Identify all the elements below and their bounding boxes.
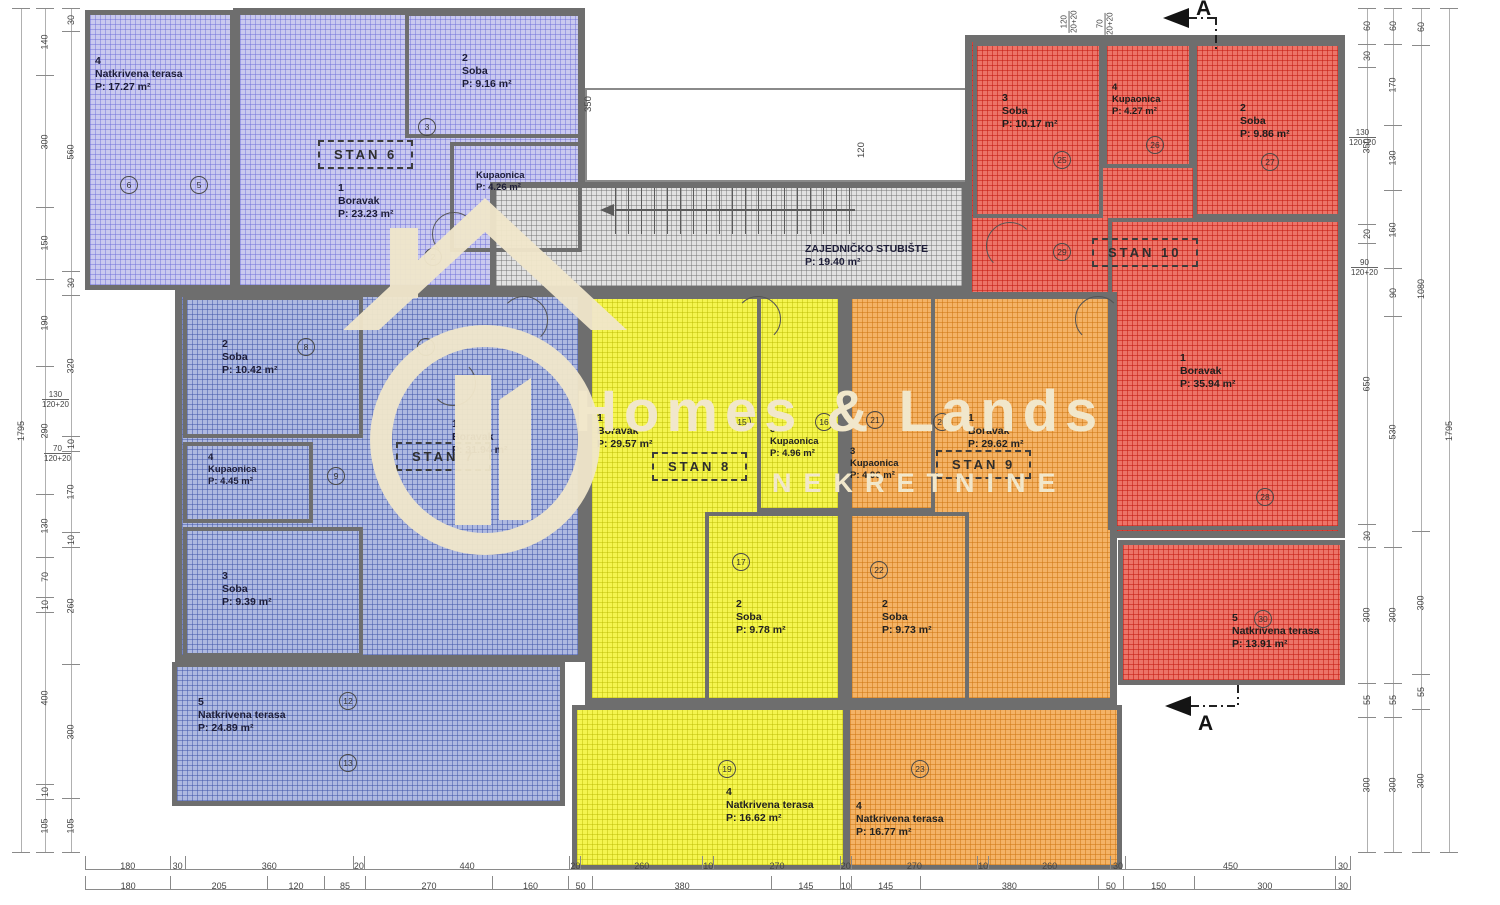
stair-rail: [615, 209, 855, 211]
dimension-segment: 300: [36, 75, 54, 207]
dimension-value: 170: [66, 485, 76, 500]
dimension-value: 90: [1388, 287, 1398, 297]
dimension-segment: 10: [36, 597, 54, 612]
dimension-segment: 300: [1358, 547, 1376, 683]
window-width-value: 70: [1096, 12, 1106, 34]
dimension-value: 60: [1416, 22, 1426, 32]
dimension-segment: 300: [1412, 531, 1430, 674]
dimension-value: 10: [841, 881, 851, 891]
room-label-stan8-kupaonica: 3 Kupaonica P: 4.96 m²: [770, 424, 819, 460]
dimension-value: 530: [1388, 425, 1398, 440]
dimension-segment: 380: [921, 876, 1100, 889]
dimension-segment: 120: [268, 876, 325, 889]
room-label-stan7-soba2: 2 Soba P: 10.42 m²: [222, 338, 277, 377]
room-area: P: 4.96 m²: [770, 448, 819, 460]
dimension-segment: 450: [1126, 856, 1336, 869]
dimension-value: 140: [40, 35, 50, 50]
interior-dimension-label: 350: [583, 96, 594, 112]
dimension-value: 50: [576, 881, 586, 891]
window-dimension-label: 70120+20: [44, 444, 71, 463]
dimension-segment: 400: [36, 612, 54, 784]
room-name: Soba: [222, 351, 277, 364]
dimension-col-left-mid: 140300150190290130701040010105: [36, 8, 54, 853]
room-index-badge: 13: [339, 754, 357, 772]
dimension-value: 440: [460, 861, 475, 871]
dimension-value: 10: [66, 535, 76, 545]
dimension-value: 60: [1388, 21, 1398, 31]
dimension-value: 55: [1388, 695, 1398, 705]
room-label-stan10-boravak: 1 Boravak P: 35.94 m²: [1180, 352, 1235, 391]
room-index-badge: 16: [815, 413, 833, 431]
window-height-value: 120+20: [1349, 138, 1376, 147]
section-label: A: [1198, 712, 1213, 736]
room-label-stan9-boravak: 1 Boravak P: 29.62 m²: [968, 412, 1023, 451]
room-label-stan6-terasa: 4 Natkrivena terasa P: 17.27 m²: [95, 55, 183, 94]
dimension-value: 1795: [16, 420, 26, 440]
staircase-area: P: 19.40 m²: [805, 256, 928, 269]
dimension-segment: 105: [62, 798, 80, 852]
dimension-value: 300: [1388, 777, 1398, 792]
room-label-stan9-soba: 2 Soba P: 9.73 m²: [882, 598, 932, 637]
window-width-value: 130: [42, 390, 69, 400]
dimension-value: 30: [1338, 861, 1348, 871]
dimension-segment: 300: [62, 664, 80, 798]
room-index-badge: 22: [870, 561, 888, 579]
dimension-value: 145: [798, 881, 813, 891]
room-area: P: 13.91 m²: [1232, 638, 1320, 651]
dimension-segment: 20: [1358, 224, 1376, 243]
room-area: P: 23.23 m²: [338, 208, 393, 221]
room-area: P: 4.27 m²: [1112, 106, 1161, 118]
dimension-segment: 300: [1358, 717, 1376, 853]
window-width-value: 120: [1060, 10, 1070, 32]
window-dimension-label: 12020+20: [1060, 10, 1079, 32]
dimension-value: 320: [66, 358, 76, 373]
room-number: 2: [736, 598, 786, 611]
dimension-value: 10: [40, 787, 50, 797]
room-name: Natkrivena terasa: [95, 68, 183, 81]
dimension-segment: 260: [989, 856, 1111, 869]
room-index-badge: 23: [911, 760, 929, 778]
room-area: P: 4.96 m²: [850, 470, 899, 482]
dimension-segment: 530: [1384, 316, 1402, 547]
dimension-segment: 105: [36, 799, 54, 852]
dimension-value: 20: [1362, 229, 1372, 239]
dimension-segment: 300: [1384, 717, 1402, 853]
dimension-value: 60: [1362, 21, 1372, 31]
room-index-badge: 7: [417, 338, 435, 356]
room-number: 2: [462, 52, 512, 65]
dimension-segment: 560: [62, 31, 80, 271]
room-label-stan7-kupaonica: 4 Kupaonica P: 4.45 m²: [208, 452, 257, 488]
room-area: P: 9.39 m²: [222, 596, 272, 609]
dimension-value: 400: [40, 691, 50, 706]
dimension-value: 300: [40, 134, 50, 149]
dimension-segment: 30: [1358, 524, 1376, 547]
room-label-stan10-terasa: 5 Natkrivena terasa P: 13.91 m²: [1232, 612, 1320, 651]
dimension-segment: 60: [1384, 8, 1402, 44]
section-cut-line: [1215, 17, 1217, 49]
dimension-value: 270: [769, 861, 784, 871]
window-width-value: 90: [1351, 258, 1378, 268]
section-arrow-icon: [1165, 696, 1191, 716]
room-name: Kupaonica: [208, 464, 257, 476]
dimension-value: 380: [1002, 881, 1017, 891]
room-name: Soba: [736, 611, 786, 624]
dimension-value: 30: [1338, 881, 1348, 891]
room-name: Boravak: [338, 195, 393, 208]
room-label-stan7-soba3: 3 Soba P: 9.39 m²: [222, 570, 272, 609]
dimension-value: 190: [40, 315, 50, 330]
room-index-badge: 27: [1261, 153, 1279, 171]
dimension-segment: 150: [1124, 876, 1195, 889]
room-name: Natkrivena terasa: [856, 813, 944, 826]
room-index-badge: 21: [866, 411, 884, 429]
room-label-stan8-terasa: 4 Natkrivena terasa P: 16.62 m²: [726, 786, 814, 825]
room-number: 3: [770, 424, 819, 436]
room-label-stan6-soba: 2 Soba P: 9.16 m²: [462, 52, 512, 91]
dimension-value: 380: [675, 881, 690, 891]
dimension-col-right-total: 1795: [1440, 8, 1458, 853]
room-name: Soba: [1002, 105, 1057, 118]
room-area: P: 4.45 m²: [208, 476, 257, 488]
dimension-value: 270: [907, 861, 922, 871]
dimension-segment: 160: [1384, 190, 1402, 267]
dimension-col-right-mid: 601701301609053030055300: [1384, 8, 1402, 853]
room-name: Boravak: [597, 425, 652, 438]
room-area: P: 10.17 m²: [1002, 118, 1057, 131]
window-dimension-label: 130120+20: [42, 390, 69, 409]
staircase-name: ZAJEDNIČKO STUBIŠTE: [805, 243, 928, 256]
dimension-segment: 30: [62, 271, 80, 294]
dimension-segment: 270: [852, 856, 978, 869]
dimension-segment: 150: [36, 207, 54, 278]
window-width-value: 70: [44, 444, 71, 454]
dimension-value: 450: [1223, 861, 1238, 871]
dimension-value: 300: [1416, 596, 1426, 611]
dimension-segment: 180: [86, 876, 171, 889]
dimension-value: 85: [340, 881, 350, 891]
dimension-row-bottom-inner: 1802051208527016050380145101453805015030…: [85, 876, 1351, 890]
room-area: P: 9.78 m²: [736, 624, 786, 637]
room-label-stan10-soba2: 2 Soba P: 9.86 m²: [1240, 102, 1290, 141]
dimension-value: 170: [1388, 78, 1398, 93]
dimension-segment: 260: [62, 547, 80, 664]
room-area: P: 35.94 m²: [1180, 378, 1235, 391]
room-area: P: 24.89 m²: [198, 722, 286, 735]
room-index-badge: 9: [327, 467, 345, 485]
dimension-segment: 170: [1384, 44, 1402, 126]
dimension-segment: 650: [1358, 243, 1376, 524]
dimension-value: 300: [66, 724, 76, 739]
room-area: P: 16.62 m²: [726, 812, 814, 825]
unit-title-stan10: STAN 10: [1092, 238, 1198, 267]
room-number: 3: [1002, 92, 1057, 105]
dimension-segment: 30: [171, 856, 186, 869]
section-label: A: [1196, 0, 1211, 21]
dimension-col-left-outer: 1795: [12, 8, 30, 853]
room-label-stan10-soba3: 3 Soba P: 10.17 m²: [1002, 92, 1057, 131]
dimension-segment: 60: [1358, 8, 1376, 44]
staircase-label: ZAJEDNIČKO STUBIŠTE P: 19.40 m²: [805, 243, 928, 269]
room-name: Soba: [222, 583, 272, 596]
room-name: Kupaonica: [476, 170, 525, 182]
room-area: P: 10.42 m²: [222, 364, 277, 377]
dimension-value: 300: [1362, 777, 1372, 792]
dimension-value: 300: [1362, 608, 1372, 623]
dimension-value: 20: [570, 861, 580, 871]
dimension-segment: 50: [569, 876, 593, 889]
dimension-value: 20: [841, 861, 851, 871]
dimension-segment: 320: [62, 295, 80, 437]
dimension-value: 260: [66, 599, 76, 614]
room-index-badge: 28: [1256, 488, 1274, 506]
dimension-segment: 10: [62, 532, 80, 547]
section-arrow-icon: [1163, 8, 1189, 28]
room-index-badge: 29: [1053, 243, 1071, 261]
dimension-segment: 140: [36, 8, 54, 75]
room-number: 4: [95, 55, 183, 68]
stan9-terrace-zone: [845, 705, 1122, 870]
room-number: 4: [1112, 82, 1161, 94]
room-index-badge: 15: [733, 413, 751, 431]
dimension-value: 150: [40, 236, 50, 251]
dimension-value: 260: [634, 861, 649, 871]
dimension-row-bottom-outer: 1803036020440202601027020270102603045030: [85, 856, 1351, 870]
dimension-value: 180: [121, 881, 136, 891]
dimension-segment: 55: [1384, 683, 1402, 717]
dimension-segment: 30: [62, 8, 80, 31]
dimension-segment: 300: [1195, 876, 1336, 889]
room-number: 2: [222, 338, 277, 351]
unit-title-stan7: STAN 7: [396, 442, 491, 471]
stair-treads: [615, 188, 855, 234]
dimension-segment: 85: [325, 876, 366, 889]
room-label-stan10-kupaonica: 4 Kupaonica P: 4.27 m²: [1112, 82, 1161, 118]
dimension-segment: 20: [354, 856, 365, 869]
dimension-segment: 270: [366, 876, 493, 889]
dimension-segment: 30: [1358, 44, 1376, 67]
dimension-value: 150: [1151, 881, 1166, 891]
room-number: 5: [1232, 612, 1320, 625]
room-label-stan8-soba: 2 Soba P: 9.78 m²: [736, 598, 786, 637]
dimension-value: 105: [66, 818, 76, 833]
dimension-segment: 20: [570, 856, 581, 869]
dimension-value: 1080: [1416, 279, 1426, 299]
dimension-value: 180: [120, 861, 135, 871]
dimension-value: 360: [262, 861, 277, 871]
section-cut-line: [1191, 705, 1239, 707]
room-area: P: 17.27 m²: [95, 81, 183, 94]
room-number: 5: [198, 696, 286, 709]
dimension-segment: 10: [703, 856, 714, 869]
dimension-segment: 30: [1111, 856, 1126, 869]
dimension-segment: 180: [86, 856, 171, 869]
room-index-badge: 8: [297, 338, 315, 356]
room-index-badge: 20: [933, 413, 951, 431]
dimension-value: 300: [1257, 881, 1272, 891]
room-number: 4: [856, 800, 944, 813]
dimension-value: 205: [212, 881, 227, 891]
room-name: Kupaonica: [850, 458, 899, 470]
dimension-value: 105: [40, 818, 50, 833]
dimension-segment: 145: [852, 876, 921, 889]
stan7-soba3-room: [183, 527, 363, 657]
room-area: P: 16.77 m²: [856, 826, 944, 839]
dimension-value: 560: [66, 144, 76, 159]
room-area: P: 9.16 m²: [462, 78, 512, 91]
window-width-value: 130: [1349, 128, 1376, 138]
dimension-segment: 1795: [12, 8, 30, 852]
window-height-value: 120+20: [42, 400, 69, 409]
dimension-segment: 30: [1336, 856, 1351, 869]
stan6-terrace-zone: [85, 10, 235, 290]
room-area: P: 4.26 m²: [476, 182, 525, 194]
dimension-value: 300: [1388, 608, 1398, 623]
room-index-badge: 26: [1146, 136, 1164, 154]
room-name: Soba: [1240, 115, 1290, 128]
dimension-segment: 205: [171, 876, 268, 889]
dimension-segment: 130: [36, 494, 54, 557]
window-height-value: 20+20: [1106, 12, 1115, 34]
room-name: Natkrivena terasa: [198, 709, 286, 722]
room-index-badge: 30: [1254, 610, 1272, 628]
interior-dimension-label: 120: [856, 142, 867, 158]
room-index-badge: 19: [718, 760, 736, 778]
room-name: Natkrivena terasa: [726, 799, 814, 812]
room-name: Kupaonica: [770, 436, 819, 448]
room-label-stan8-boravak: 1 Boravak P: 29.57 m²: [597, 412, 652, 451]
dimension-segment: 55: [1358, 683, 1376, 717]
room-area: P: 29.57 m²: [597, 438, 652, 451]
room-number: 1: [338, 182, 393, 195]
room-number: 1: [597, 412, 652, 425]
room-name: Natkrivena terasa: [1232, 625, 1320, 638]
dimension-value: 1795: [1444, 420, 1454, 440]
room-index-badge: 17: [732, 553, 750, 571]
dimension-value: 10: [703, 861, 713, 871]
stan6-kupaonica-room: [450, 142, 582, 252]
dimension-segment: 60: [1412, 8, 1430, 45]
dimension-col-left-inner: 30560303201017010260300105: [62, 8, 80, 853]
dimension-value: 30: [173, 861, 183, 871]
dimension-value: 300: [1416, 774, 1426, 789]
dimension-value: 270: [421, 881, 436, 891]
room-label-stan6-boravak: 1 Boravak P: 23.23 m²: [338, 182, 393, 221]
dimension-segment: 10: [978, 856, 989, 869]
dimension-segment: 160: [493, 876, 569, 889]
window-height-value: 120+20: [44, 454, 71, 463]
room-number: 3: [850, 446, 899, 458]
unit-title-stan6: STAN 6: [318, 140, 413, 169]
dimension-segment: 10: [841, 876, 852, 889]
dimension-value: 70: [40, 572, 50, 582]
room-number: 1: [452, 418, 507, 431]
dimension-segment: 260: [581, 856, 703, 869]
room-index-badge: 12: [339, 692, 357, 710]
dimension-segment: 20: [841, 856, 852, 869]
room-number: 3: [222, 570, 272, 583]
room-name: Kupaonica: [1112, 94, 1161, 106]
dimension-value: 50: [1106, 881, 1116, 891]
dimension-value: 30: [66, 15, 76, 25]
section-cut-line: [1237, 685, 1239, 705]
dimension-value: 10: [978, 861, 988, 871]
room-number: 4: [726, 786, 814, 799]
dimension-segment: 270: [714, 856, 840, 869]
dimension-value: 30: [1113, 861, 1123, 871]
room-number: 1: [968, 412, 1023, 425]
dimension-segment: 190: [36, 279, 54, 367]
dimension-value: 10: [40, 600, 50, 610]
room-index-badge: 25: [1053, 151, 1071, 169]
room-name: Boravak: [968, 425, 1023, 438]
room-name: Soba: [882, 611, 932, 624]
room-area: P: 9.86 m²: [1240, 128, 1290, 141]
dimension-segment: 170: [62, 451, 80, 532]
dimension-segment: 30: [1336, 876, 1351, 889]
dimension-value: 290: [40, 423, 50, 438]
dimension-segment: 290: [36, 366, 54, 494]
dimension-value: 30: [1362, 51, 1372, 61]
window-height-value: 120+20: [1351, 268, 1378, 277]
dimension-segment: 50: [1099, 876, 1123, 889]
dimension-col-right-outer: 60108030055300: [1412, 8, 1430, 853]
dimension-value: 55: [1416, 687, 1426, 697]
stair-direction-arrow-icon: [600, 204, 614, 216]
window-dimension-label: 130120+20: [1349, 128, 1376, 147]
unit-title-stan8: STAN 8: [652, 452, 747, 481]
dimension-value: 120: [289, 881, 304, 891]
dimension-value: 30: [66, 278, 76, 288]
dimension-value: 160: [1388, 222, 1398, 237]
room-area: P: 9.73 m²: [882, 624, 932, 637]
unit-title-stan9: STAN 9: [936, 450, 1031, 479]
dimension-value: 130: [1388, 151, 1398, 166]
room-number: 2: [1240, 102, 1290, 115]
dimension-segment: 440: [365, 856, 570, 869]
room-number: 2: [882, 598, 932, 611]
room-index-badge: 3: [418, 118, 436, 136]
window-height-value: 20+20: [1070, 10, 1079, 32]
dimension-segment: 90: [1384, 268, 1402, 316]
room-index-badge: 5: [190, 176, 208, 194]
room-label-stan6-kupaonica: Kupaonica P: 4.26 m²: [476, 170, 525, 194]
window-dimension-label: 90120+20: [1351, 258, 1378, 277]
room-number: 4: [208, 452, 257, 464]
dimension-segment: 70: [36, 557, 54, 596]
dimension-segment: 360: [186, 856, 354, 869]
dimension-value: 20: [354, 861, 364, 871]
room-number: 1: [1180, 352, 1235, 365]
void-above-staircase: [585, 88, 968, 182]
room-name: Boravak: [1180, 365, 1235, 378]
room-index-badge: 6: [120, 176, 138, 194]
floor-plan-canvas: 4 Natkrivena terasa P: 17.27 m² 2 Soba P…: [0, 0, 1500, 905]
dimension-value: 55: [1362, 695, 1372, 705]
dimension-value: 145: [878, 881, 893, 891]
dimension-value: 30: [1362, 531, 1372, 541]
dimension-value: 160: [523, 881, 538, 891]
room-index-badge: 2: [424, 248, 442, 266]
dimension-segment: 145: [772, 876, 841, 889]
window-dimension-label: 7020+20: [1096, 12, 1115, 34]
dimension-segment: 380: [593, 876, 772, 889]
dimension-segment: 300: [1412, 709, 1430, 852]
dimension-segment: 1795: [1440, 8, 1458, 852]
dimension-value: 260: [1042, 861, 1057, 871]
dimension-segment: 1080: [1412, 45, 1430, 531]
